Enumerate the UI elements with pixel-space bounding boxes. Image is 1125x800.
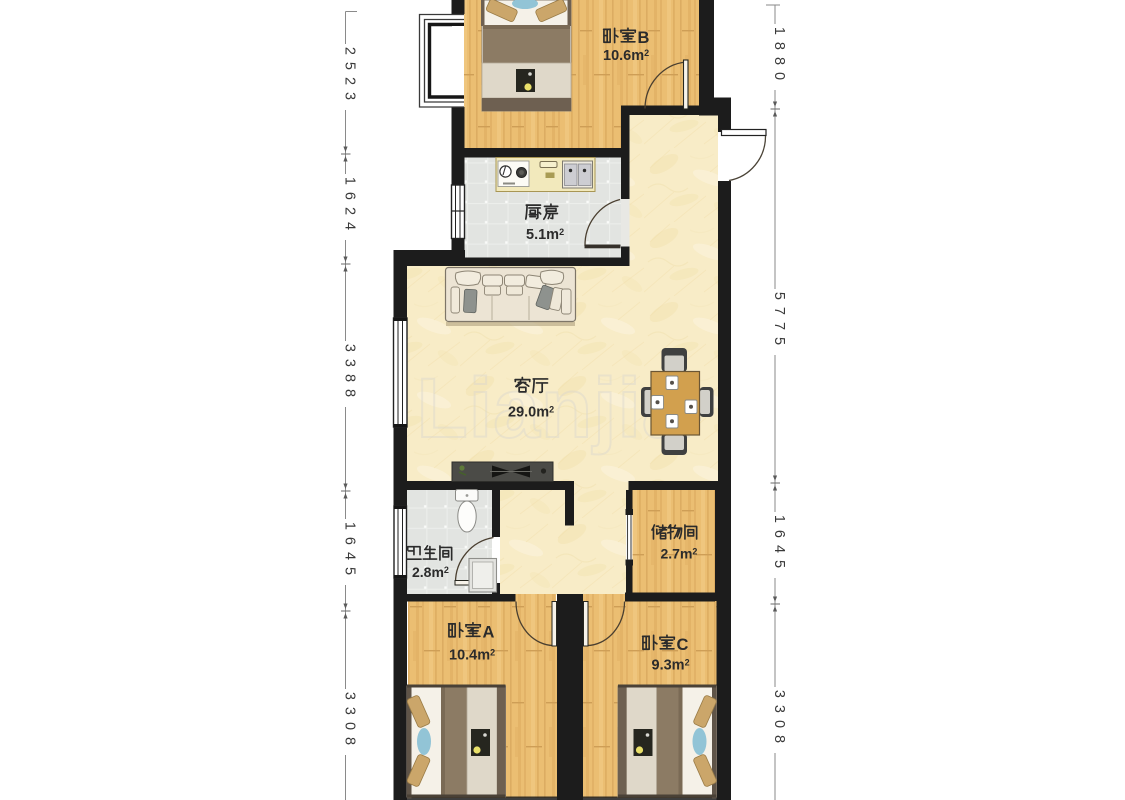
svg-text:A: A bbox=[483, 624, 495, 642]
svg-text:5775: 5775 bbox=[771, 292, 787, 352]
svg-text:1624: 1624 bbox=[342, 177, 358, 237]
svg-text:29.0m2: 29.0m2 bbox=[508, 405, 554, 421]
svg-text:2.8m2: 2.8m2 bbox=[412, 564, 449, 580]
svg-text:10.4m2: 10.4m2 bbox=[449, 648, 495, 664]
svg-text:B: B bbox=[638, 29, 650, 47]
svg-text:C: C bbox=[677, 636, 689, 654]
svg-text:1645: 1645 bbox=[771, 515, 787, 575]
svg-text:5.1m2: 5.1m2 bbox=[526, 227, 564, 243]
svg-text:2523: 2523 bbox=[342, 47, 358, 107]
svg-text:2.7m2: 2.7m2 bbox=[661, 546, 698, 562]
svg-text:3388: 3388 bbox=[342, 344, 358, 404]
svg-text:9.3m2: 9.3m2 bbox=[652, 658, 690, 674]
svg-text:10.6m2: 10.6m2 bbox=[603, 48, 649, 64]
svg-text:3308: 3308 bbox=[342, 692, 358, 752]
svg-text:1645: 1645 bbox=[342, 522, 358, 582]
svg-text:1880: 1880 bbox=[771, 27, 787, 87]
svg-text:3308: 3308 bbox=[771, 690, 787, 750]
